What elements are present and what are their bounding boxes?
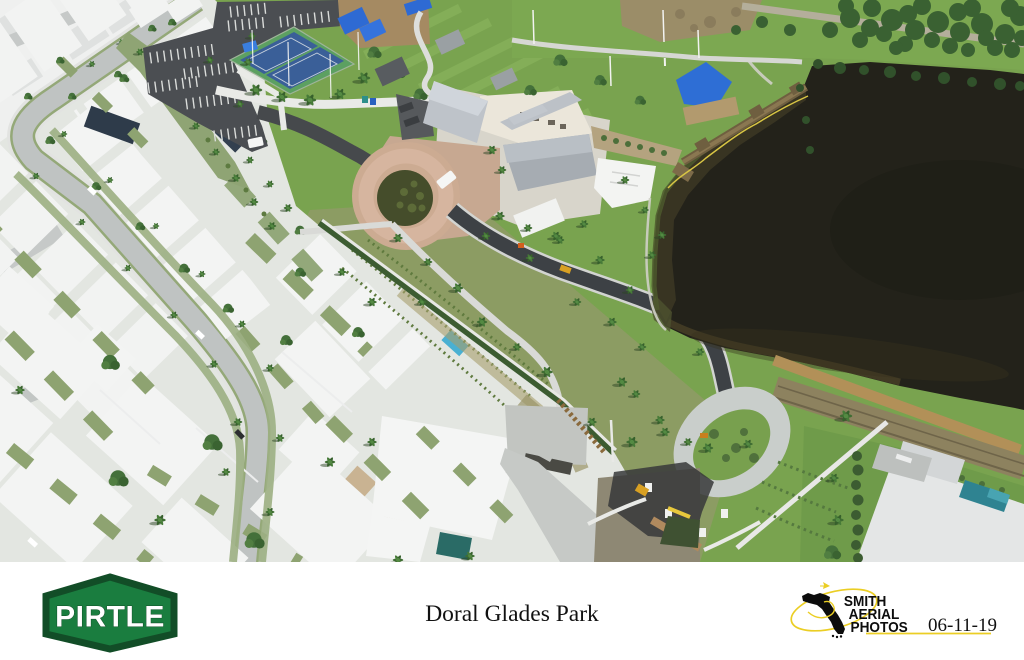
- svg-text:06-11-19: 06-11-19: [928, 615, 997, 636]
- svg-text:PHOTOS: PHOTOS: [851, 619, 908, 635]
